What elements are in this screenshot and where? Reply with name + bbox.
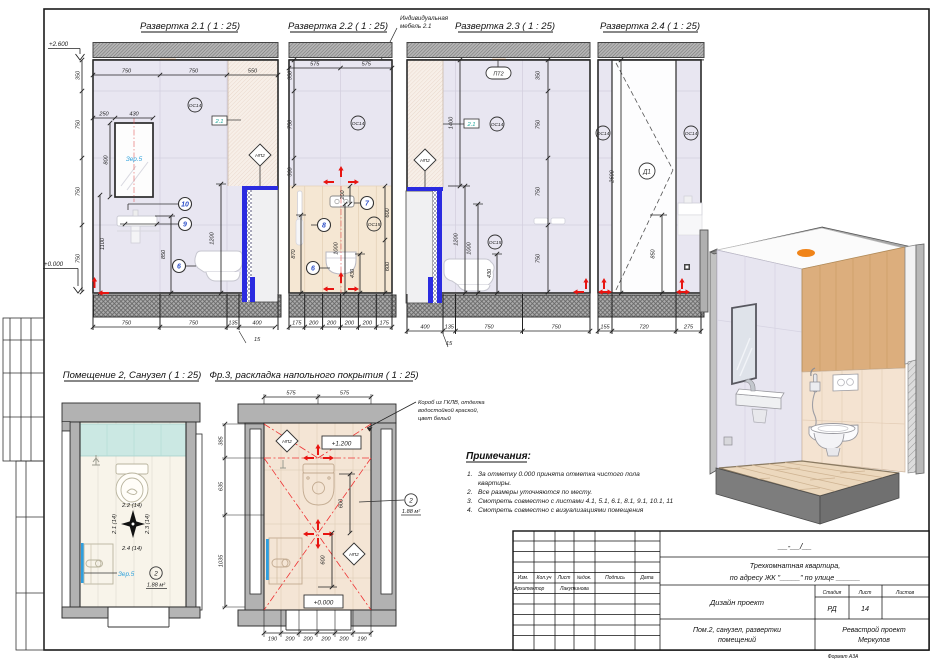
svg-text:15: 15 [254,337,261,343]
svg-text:155: 155 [600,325,610,331]
svg-text:10: 10 [181,201,189,208]
svg-text:2: 2 [153,571,158,578]
svg-text:ОС15: ОС15 [489,240,502,246]
svg-text:2.4 (14): 2.4 (14) [121,546,142,552]
svg-text:350: 350 [288,70,294,80]
svg-text:3.: 3. [467,498,473,505]
svg-text:Примечания:: Примечания: [466,451,531,462]
svg-text:1000: 1000 [334,241,340,254]
svg-text:цвет белый: цвет белый [418,415,452,422]
svg-text:750: 750 [552,325,562,331]
svg-text:2600: 2600 [610,169,616,183]
svg-text:ПТ2: ПТ2 [493,72,503,78]
svg-text:430: 430 [350,268,356,278]
svg-text:2.: 2. [466,489,473,496]
svg-text:300: 300 [288,166,294,176]
svg-text:Формат А3А: Формат А3А [828,654,859,660]
svg-text:750: 750 [76,186,82,196]
svg-text:Короб из ГКЛВ, отделка: Короб из ГКЛВ, отделка [418,400,485,406]
svg-text:135: 135 [445,325,455,331]
svg-text:750: 750 [288,119,294,129]
svg-text:Лист: Лист [557,575,571,581]
svg-text:1100: 1100 [100,237,106,250]
svg-text:Дизайн проект: Дизайн проект [709,598,764,607]
svg-text:1400: 1400 [449,116,455,129]
svg-text:Изм.: Изм. [518,575,529,581]
svg-text:1000: 1000 [467,241,473,254]
svg-text:200: 200 [320,637,331,643]
svg-text:850: 850 [651,248,657,258]
svg-text:За отметку 0.000 принята отмет: За отметку 0.000 принята отметка чистого… [478,471,640,478]
svg-text:РД: РД [827,604,836,613]
svg-text:1200: 1200 [210,231,216,244]
svg-text:Листов: Листов [895,590,915,596]
svg-text:Развертка 2.1 ( 1 : 25): Развертка 2.1 ( 1 : 25) [140,21,240,32]
svg-text:200: 200 [338,637,349,643]
svg-text:9: 9 [183,221,187,228]
svg-text:750: 750 [189,321,199,327]
svg-text:__-__/__: __-__/__ [777,541,812,551]
svg-text:350: 350 [535,70,541,80]
svg-text:ОС15: ОС15 [368,222,381,228]
svg-text:НП2: НП2 [420,158,430,164]
svg-text:350: 350 [76,70,82,80]
svg-text:+0.000: +0.000 [44,261,64,268]
svg-text:200: 200 [308,321,319,327]
svg-text:Подпись: Подпись [605,575,625,581]
svg-text:Смотреть совместно с визуализа: Смотреть совместно с визуализациями поме… [478,507,644,514]
svg-text:по адресу ЖК "_____" по улице: по адресу ЖК "_____" по улице ______ [730,573,860,582]
svg-text:Стадия: Стадия [823,590,842,596]
svg-text:14: 14 [861,604,869,613]
svg-text:Лакутинова: Лакутинова [559,586,589,592]
svg-text:НП2: НП2 [282,439,292,445]
svg-text:+0.000: +0.000 [314,600,334,607]
svg-text:№док.: №док. [577,575,592,581]
svg-text:200: 200 [362,321,373,327]
svg-text:+1.200: +1.200 [332,441,352,448]
svg-text:190: 190 [357,637,367,643]
svg-text:2: 2 [408,498,413,505]
svg-text:200: 200 [344,321,355,327]
svg-text:Развертка 2.3 ( 1 : 25): Развертка 2.3 ( 1 : 25) [455,21,555,32]
svg-text:800: 800 [104,154,110,164]
svg-text:Все размеры уточняются по мест: Все размеры уточняются по месту. [478,489,592,496]
svg-text:водостойкой краской,: водостойкой краской, [418,407,478,414]
svg-text:помещений: помещений [718,636,756,644]
svg-text:1.88 м²: 1.88 м² [402,509,421,515]
svg-text:385: 385 [219,435,225,445]
svg-text:1.88 м²: 1.88 м² [147,583,166,589]
svg-text:575: 575 [340,391,350,397]
svg-text:200: 200 [302,637,313,643]
svg-text:135: 135 [228,321,238,327]
svg-text:600: 600 [385,207,391,217]
svg-text:430: 430 [129,112,139,118]
svg-text:мебель 2.1: мебель 2.1 [400,23,431,30]
svg-text:400: 400 [420,325,430,331]
svg-text:2.1 (14): 2.1 (14) [112,514,118,535]
svg-text:200: 200 [340,189,346,200]
svg-text:Зер.5: Зер.5 [126,156,143,163]
svg-text:НП2: НП2 [349,552,359,558]
svg-text:Ревастрой проект: Ревастрой проект [842,626,906,634]
svg-text:175: 175 [379,321,389,327]
svg-text:2.1: 2.1 [214,119,223,125]
svg-text:ОС14: ОС14 [491,122,504,128]
svg-text:720: 720 [639,325,649,331]
svg-text:Помещение 2, Санузел ( 1 : 25): Помещение 2, Санузел ( 1 : 25) [63,370,202,381]
svg-text:550: 550 [248,69,258,75]
svg-text:850: 850 [161,249,167,259]
svg-text:Развертка 2.4 ( 1 : 25): Развертка 2.4 ( 1 : 25) [600,21,700,32]
svg-text:2.2 (14): 2.2 (14) [121,503,142,509]
svg-text:750: 750 [535,186,541,196]
svg-text:Развертка 2.2 ( 1 : 25): Развертка 2.2 ( 1 : 25) [288,21,388,32]
svg-text:Пом.2, санузел, развертки: Пом.2, санузел, развертки [693,627,781,634]
svg-text:870: 870 [291,248,297,258]
svg-text:250: 250 [98,112,109,118]
svg-text:6: 6 [311,265,315,272]
svg-text:Дата: Дата [639,575,653,581]
svg-text:600: 600 [339,498,345,508]
svg-text:Архитектор: Архитектор [513,586,544,592]
svg-text:175: 175 [292,321,302,327]
svg-text:Д1: Д1 [642,170,651,176]
svg-text:575: 575 [362,62,372,68]
svg-text:ОС14: ОС14 [352,121,365,127]
svg-text:575: 575 [286,391,296,397]
svg-text:Смотреть совместно с листами 4: Смотреть совместно с листами 4.1, 5.1, 6… [478,498,673,505]
svg-text:Трехкомнатная квартира,: Трехкомнатная квартира, [750,561,840,570]
svg-text:2.1: 2.1 [466,122,475,128]
svg-text:750: 750 [484,325,494,331]
svg-text:Фр.3, раскладка напольного пок: Фр.3, раскладка напольного покрытия ( 1 … [209,370,418,381]
svg-text:750: 750 [122,321,132,327]
svg-text:190: 190 [268,637,278,643]
svg-text:+2.600: +2.600 [49,41,69,48]
svg-text:ОС14: ОС14 [597,131,610,137]
svg-text:635: 635 [219,481,225,491]
svg-text:600: 600 [321,554,327,564]
svg-text:4.: 4. [467,507,473,514]
svg-text:НП2: НП2 [255,153,265,159]
svg-text:8: 8 [322,222,326,229]
svg-text:575: 575 [310,62,320,68]
svg-text:Индивидуальная: Индивидуальная [400,15,449,22]
svg-text:430: 430 [487,268,493,278]
svg-text:750: 750 [189,69,199,75]
svg-text:6: 6 [177,263,181,270]
svg-text:квартиры.: квартиры. [478,480,511,487]
svg-text:Меркулов: Меркулов [858,637,890,644]
svg-text:ОС14: ОС14 [189,103,202,109]
svg-text:750: 750 [76,253,82,263]
svg-text:1.: 1. [467,471,473,478]
svg-text:Кол.уч: Кол.уч [537,575,552,581]
svg-text:750: 750 [535,119,541,129]
svg-text:400: 400 [252,321,262,327]
svg-text:275: 275 [683,325,694,331]
svg-text:200: 200 [326,321,337,327]
svg-text:600: 600 [385,261,391,271]
svg-text:1200: 1200 [454,232,460,245]
svg-text:750: 750 [535,253,541,263]
svg-text:2.3 (14): 2.3 (14) [145,514,151,535]
svg-text:750: 750 [76,119,82,129]
svg-text:ОС14: ОС14 [685,131,698,137]
svg-text:Зер.5: Зер.5 [118,571,135,578]
svg-text:1035: 1035 [219,554,225,567]
svg-text:200: 200 [284,637,295,643]
svg-text:Лист: Лист [858,590,872,596]
svg-text:750: 750 [122,69,132,75]
